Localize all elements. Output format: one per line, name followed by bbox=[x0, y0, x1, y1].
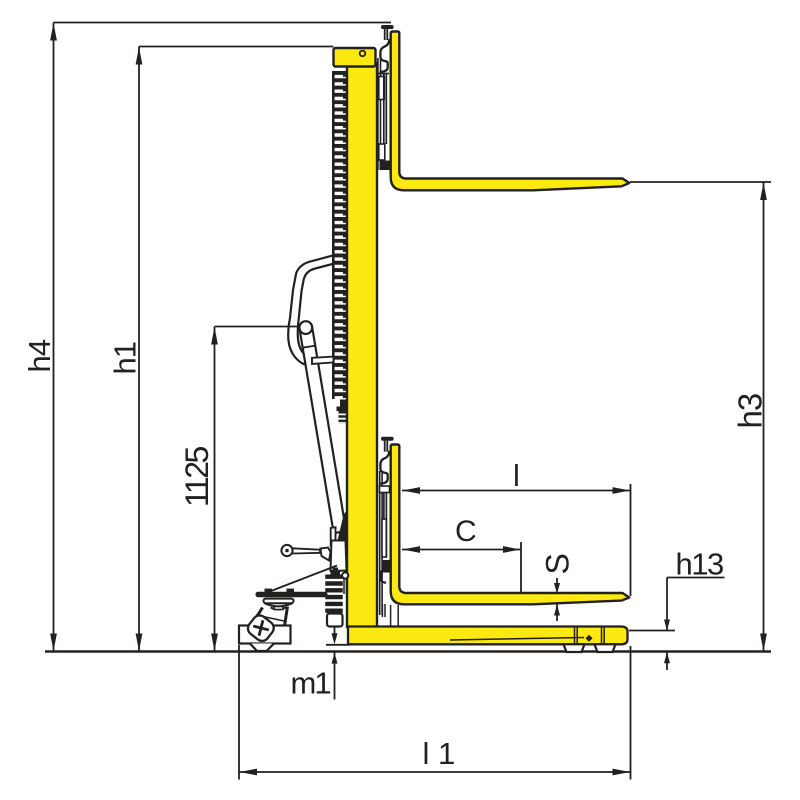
svg-text:h3: h3 bbox=[732, 394, 769, 429]
svg-text:h4: h4 bbox=[22, 339, 57, 372]
svg-text:S: S bbox=[540, 554, 576, 574]
svg-text:m1: m1 bbox=[291, 666, 331, 701]
svg-text:C: C bbox=[455, 515, 477, 548]
svg-text:h13: h13 bbox=[676, 547, 723, 582]
svg-text:h1: h1 bbox=[108, 342, 143, 374]
svg-text:1125: 1125 bbox=[179, 446, 215, 507]
svg-text:l: l bbox=[513, 458, 520, 493]
svg-text:l 1: l 1 bbox=[423, 736, 456, 771]
